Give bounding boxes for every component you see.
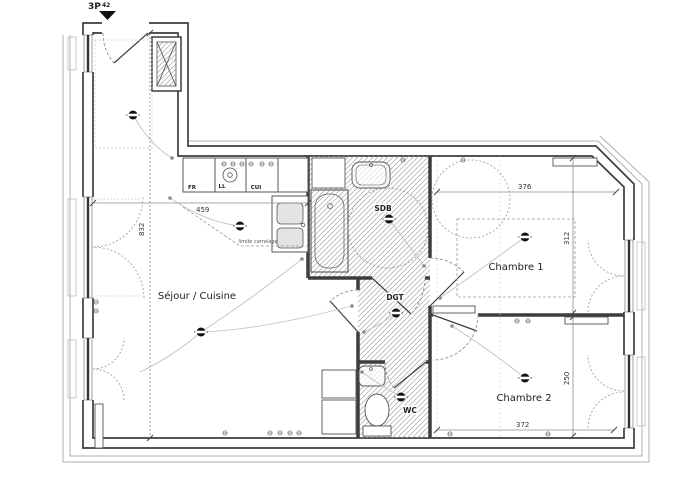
kitchen-unit-ll: LL bbox=[218, 184, 226, 190]
switch-dot-icon bbox=[170, 156, 174, 160]
room-label-sdb: SDB bbox=[374, 204, 392, 213]
dim-kitchen-width: 459 bbox=[196, 206, 209, 214]
room-label-dgt: DGT bbox=[386, 293, 404, 302]
switch-dot-icon bbox=[362, 330, 366, 334]
cabinet bbox=[322, 400, 356, 434]
radiator bbox=[95, 404, 103, 448]
radiator bbox=[553, 158, 597, 166]
kitchen-unit-cui: CUI bbox=[251, 185, 262, 191]
dim-chambre2-width: 372 bbox=[516, 421, 529, 429]
cabinet bbox=[322, 370, 356, 398]
wc-hand-basin bbox=[359, 366, 385, 386]
tile-limit-label: limite carrelage bbox=[238, 239, 277, 245]
floor-plan-svg: 459 832 376 312 250 372 Séjour / Cuisine… bbox=[0, 0, 700, 485]
plan-area-label: 42 bbox=[102, 2, 110, 9]
room-label-chambre1: Chambre 1 bbox=[488, 262, 543, 273]
duct-shaft bbox=[152, 37, 181, 91]
radiator bbox=[433, 306, 475, 313]
sdb-cupboard bbox=[312, 158, 345, 188]
room-label-chambre2: Chambre 2 bbox=[496, 393, 551, 404]
entrance-arrow-icon bbox=[99, 11, 116, 20]
room-label-wc: WC bbox=[403, 406, 417, 415]
dim-chambre1-height: 312 bbox=[563, 232, 571, 245]
kitchen-counter bbox=[183, 158, 308, 192]
switch-dot-icon bbox=[360, 370, 364, 374]
switch-dot-icon bbox=[168, 196, 172, 200]
dim-sejour-height: 832 bbox=[138, 223, 146, 236]
sdb-washbasin bbox=[352, 162, 390, 188]
switch-dot-icon bbox=[438, 296, 442, 300]
switch-dot-icon bbox=[450, 324, 454, 328]
plan-type-label: 3P bbox=[88, 2, 101, 12]
floor-plan-canvas: 459 832 376 312 250 372 Séjour / Cuisine… bbox=[0, 0, 700, 485]
switch-dot-icon bbox=[422, 264, 426, 268]
entrance-marker: 3P 42 bbox=[88, 2, 116, 20]
dim-chambre2-height: 250 bbox=[563, 372, 571, 385]
window-entry bbox=[68, 35, 96, 72]
dgt-floor bbox=[358, 278, 430, 362]
toilet bbox=[363, 394, 391, 436]
dim-chambre1-width: 376 bbox=[518, 183, 532, 191]
kitchen-unit-fr: FR bbox=[188, 185, 197, 191]
switch-dot-icon bbox=[300, 257, 304, 261]
room-label-sejour: Séjour / Cuisine bbox=[158, 290, 236, 302]
entrance-gap bbox=[102, 20, 149, 35]
switch-dot-icon bbox=[350, 304, 354, 308]
